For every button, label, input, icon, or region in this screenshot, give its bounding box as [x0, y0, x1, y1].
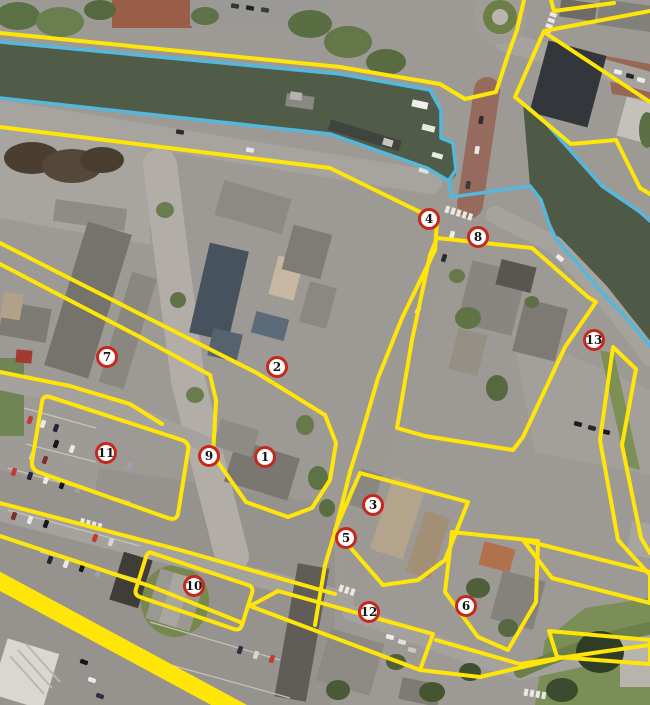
- aerial-map: 12345678910111213: [0, 0, 650, 705]
- zone-marker-10: 10: [183, 575, 205, 597]
- zone-marker-12: 12: [358, 601, 380, 623]
- zone-marker-2: 2: [266, 356, 288, 378]
- zone-marker-13: 13: [583, 329, 605, 351]
- zone-marker-8: 8: [467, 226, 489, 248]
- zone-marker-4: 4: [418, 208, 440, 230]
- zone-markers: 12345678910111213: [0, 0, 650, 705]
- zone-marker-6: 6: [455, 595, 477, 617]
- zone-marker-11: 11: [95, 442, 117, 464]
- zone-marker-3: 3: [362, 494, 384, 516]
- zone-marker-9: 9: [198, 445, 220, 467]
- zone-marker-5: 5: [335, 527, 357, 549]
- zone-marker-1: 1: [254, 446, 276, 468]
- zone-marker-7: 7: [96, 346, 118, 368]
